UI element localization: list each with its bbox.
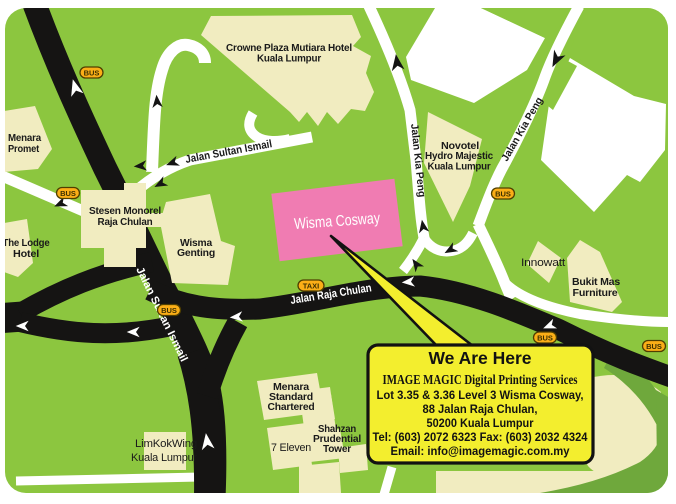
svg-text:We Are Here: We Are Here bbox=[428, 348, 531, 368]
svg-text:BUS: BUS bbox=[84, 69, 100, 78]
svg-text:BUS: BUS bbox=[495, 190, 511, 199]
svg-text:IMAGE MAGIC Digital Printing S: IMAGE MAGIC Digital Printing Services bbox=[383, 373, 578, 388]
svg-text:Lot 3.35 & 3.36 Level 3 Wisma: Lot 3.35 & 3.36 Level 3 Wisma Cosway, bbox=[377, 388, 584, 402]
svg-text:88 Jalan Raja Chulan,: 88 Jalan Raja Chulan, bbox=[423, 402, 538, 416]
svg-text:Genting: Genting bbox=[177, 247, 215, 259]
svg-text:BUS: BUS bbox=[161, 306, 177, 315]
svg-text:50200 Kuala Lumpur: 50200 Kuala Lumpur bbox=[427, 416, 534, 430]
svg-text:7 Eleven: 7 Eleven bbox=[271, 442, 311, 454]
svg-text:Email: info@imagemagic.com.my: Email: info@imagemagic.com.my bbox=[391, 444, 570, 458]
svg-text:Hotel: Hotel bbox=[13, 248, 39, 260]
svg-text:BUS: BUS bbox=[537, 334, 553, 343]
svg-text:Innowatt: Innowatt bbox=[521, 257, 565, 269]
svg-text:BUS: BUS bbox=[60, 189, 76, 198]
svg-text:BUS: BUS bbox=[646, 342, 662, 351]
svg-text:Kuala Lumpur: Kuala Lumpur bbox=[428, 161, 491, 173]
svg-text:Promet: Promet bbox=[8, 143, 40, 155]
svg-text:Chartered: Chartered bbox=[268, 401, 315, 413]
svg-text:LimKokWing: LimKokWing bbox=[135, 438, 197, 450]
svg-text:Furniture: Furniture bbox=[573, 287, 618, 299]
svg-text:Tel: (603) 2072 6323 Fax: (603: Tel: (603) 2072 6323 Fax: (603) 2032 432… bbox=[373, 430, 588, 444]
svg-text:Kuala Lumpur: Kuala Lumpur bbox=[257, 53, 321, 65]
svg-text:Kuala Lumpur: Kuala Lumpur bbox=[131, 452, 198, 464]
svg-text:Tower: Tower bbox=[323, 444, 351, 455]
svg-text:Raja Chulan: Raja Chulan bbox=[98, 216, 153, 228]
svg-text:TAXI: TAXI bbox=[303, 282, 320, 291]
